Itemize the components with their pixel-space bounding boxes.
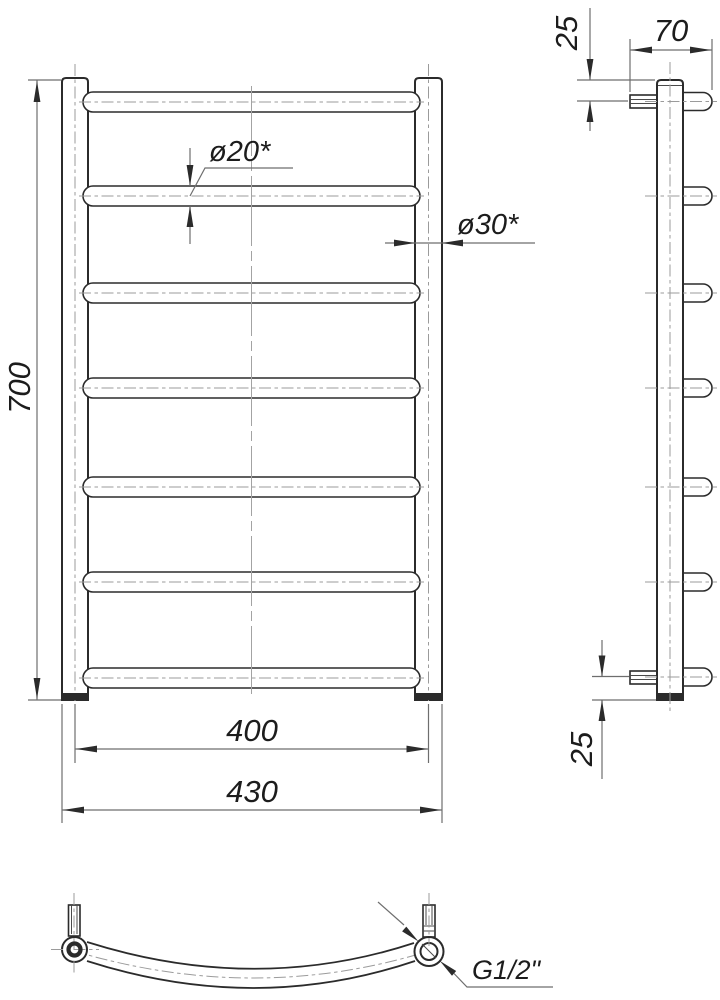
side-view (630, 62, 717, 714)
top-offset-label: 25 (549, 15, 584, 51)
dimension-rail-diameter: ø30* (385, 209, 535, 246)
side-rung-stubs (682, 93, 712, 687)
outer-width-label: 430 (226, 774, 278, 809)
towel-rail-drawing: 700 ø20* ø30* 400 430 (0, 0, 720, 1000)
bottom-offset-label: 25 (564, 731, 599, 767)
arc-bar-fill (87, 942, 415, 988)
rung-diameter-label: ø20* (209, 136, 272, 168)
depth-dimension-label: 70 (654, 13, 688, 48)
dimension-height-700: 700 (2, 80, 61, 700)
dimension-bottom-offset-25: 25 (564, 640, 656, 779)
right-rail-bottom-cap (415, 693, 442, 700)
thread-label: G1/2" (472, 955, 542, 985)
height-dimension-label: 700 (2, 362, 37, 414)
inner-width-label: 400 (226, 713, 278, 748)
left-rail-bottom-cap (62, 693, 88, 700)
thread-callout: G1/2" (378, 902, 553, 987)
technical-drawing-page: 700 ø20* ø30* 400 430 (0, 0, 720, 1000)
dimension-inner-width-400: 400 (75, 704, 429, 763)
bottom-right-connector (415, 893, 444, 966)
bottom-left-connector (51, 893, 99, 976)
bottom-view: G1/2" (51, 893, 553, 988)
dimension-top-offset-25: 25 (549, 8, 655, 131)
rail-diameter-label: ø30* (457, 209, 520, 241)
